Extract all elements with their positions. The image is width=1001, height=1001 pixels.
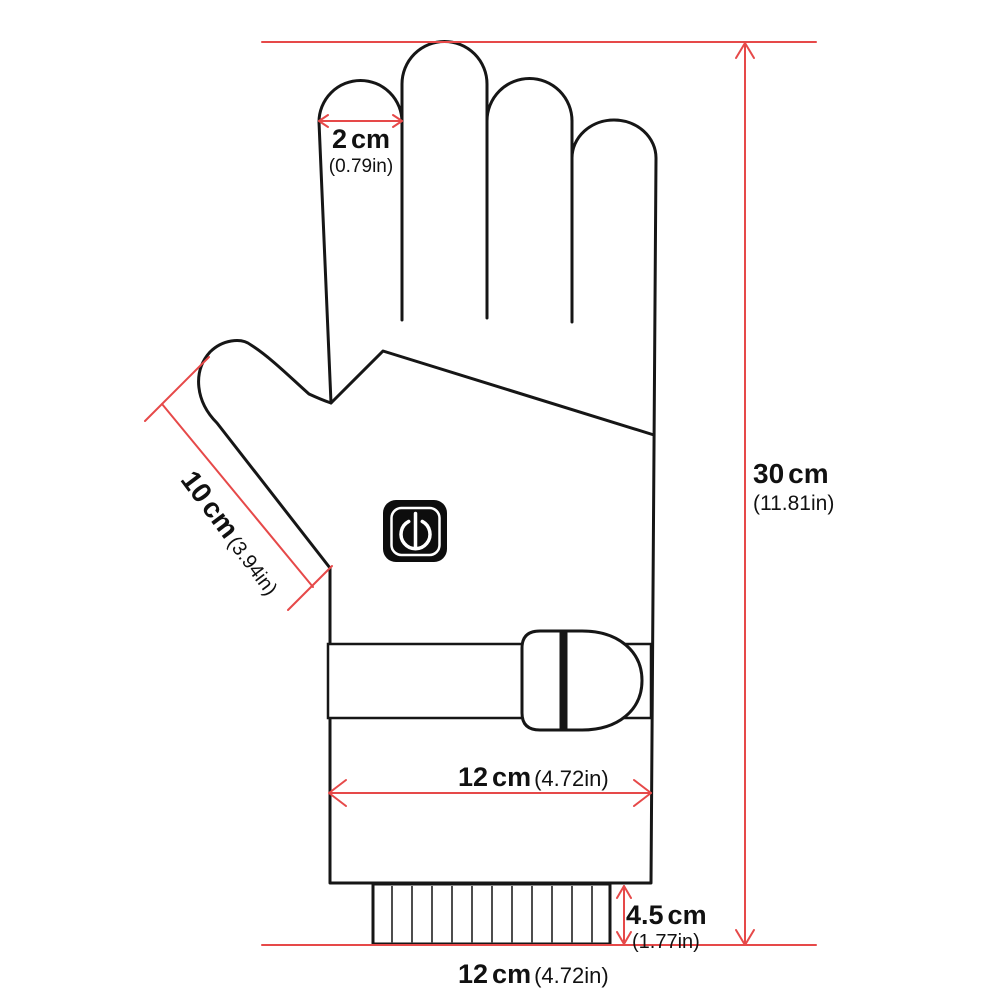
glove-height-unit: cm	[788, 460, 828, 488]
glove-width-value: 12	[458, 961, 488, 988]
palm-width-inches: (4.72in)	[534, 768, 609, 790]
glove-silhouette	[199, 42, 656, 884]
finger-width-unit: cm	[351, 126, 390, 153]
finger-width-value: 2	[332, 126, 347, 153]
finger-width-label: 2cm (0.79in)	[319, 126, 403, 176]
glove-height-inches: (11.81in)	[753, 493, 834, 514]
glove-width-unit: cm	[492, 961, 531, 988]
cuff-height-label: 4.5cm (1.77in)	[626, 902, 707, 952]
palm-width-unit: cm	[492, 764, 531, 791]
buckle-bar	[560, 631, 568, 730]
glove-width-inches: (4.72in)	[534, 965, 609, 987]
glove-dimension-diagram: 2cm (0.79in) 10cm(3.94in) 30cm (11.81in)…	[0, 0, 1001, 1001]
palm-width-value: 12	[458, 764, 488, 791]
cuff-height-value: 4.5	[626, 902, 664, 929]
dimension-glove-height-arrow	[736, 43, 754, 945]
cuff-height-unit: cm	[668, 902, 707, 929]
glove-width-label: 12cm(4.72in)	[458, 961, 609, 988]
glove-height-label: 30cm (11.81in)	[753, 460, 834, 514]
glove-height-value: 30	[753, 460, 784, 488]
strap-buckle	[522, 631, 642, 730]
finger-width-inches: (0.79in)	[319, 157, 403, 176]
power-icon	[383, 500, 447, 562]
cuff-height-inches: (1.77in)	[632, 932, 707, 952]
palm-width-label: 12cm(4.72in)	[458, 764, 609, 791]
glove-drawing	[0, 0, 1001, 1001]
